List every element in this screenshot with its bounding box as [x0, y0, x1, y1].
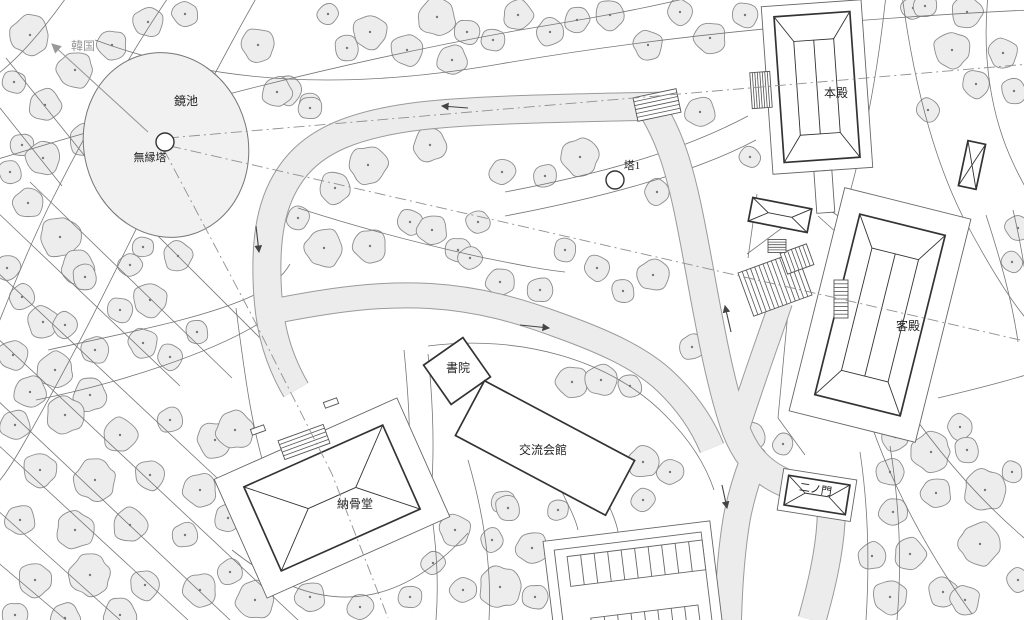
tree-center-dot: [21, 144, 23, 146]
tree-center-dot: [359, 606, 361, 608]
tree: [2, 604, 28, 620]
tree-center-dot: [979, 543, 981, 545]
tree-center-dot: [975, 83, 977, 85]
tree-center-dot: [309, 596, 311, 598]
tree-center-dot: [39, 469, 41, 471]
tree-center-dot: [323, 247, 325, 249]
label-shoin: 書院: [446, 361, 470, 375]
to-1-marker: [606, 171, 624, 189]
tree-center-dot: [406, 49, 408, 51]
tree-center-dot: [466, 31, 468, 33]
tree-center-dot: [94, 349, 96, 351]
stairs: [768, 240, 786, 253]
tree-center-dot: [309, 107, 311, 109]
muen-to-marker: [156, 133, 174, 151]
tree-center-dot: [749, 156, 751, 158]
tree-center-dot: [596, 267, 598, 269]
tree-center-dot: [429, 144, 431, 146]
tree-center-dot: [64, 324, 66, 326]
tree-center-dot: [367, 164, 369, 166]
tree: [913, 0, 936, 17]
tree-center-dot: [54, 369, 56, 371]
tree-center-dot: [544, 175, 546, 177]
tree-center-dot: [327, 13, 329, 15]
tree-center-dot: [84, 276, 86, 278]
tree-center-dot: [557, 509, 559, 511]
tree-center-dot: [782, 443, 784, 445]
tree-center-dot: [27, 202, 29, 204]
tree-center-dot: [13, 81, 15, 83]
tree-center-dot: [531, 547, 533, 549]
tree-center-dot: [930, 451, 932, 453]
tree-center-dot: [6, 267, 8, 269]
tree-center-dot: [669, 471, 671, 473]
tree-center-dot: [431, 229, 433, 231]
tree-center-dot: [507, 507, 509, 509]
tree-center-dot: [196, 331, 198, 333]
tree-center-dot: [432, 562, 434, 564]
tree-center-dot: [927, 109, 929, 111]
tree-center-dot: [539, 289, 541, 291]
tree-center-dot: [499, 281, 501, 283]
tree-center-dot: [622, 290, 624, 292]
label-koryu-kaikan: 交流会館: [519, 442, 567, 457]
tree-center-dot: [229, 571, 231, 573]
tree-center-dot: [469, 257, 471, 259]
label-nokotsudo: 納骨堂: [337, 497, 373, 511]
tree-center-dot: [462, 589, 464, 591]
tree-center-dot: [184, 13, 186, 15]
tree-center-dot: [892, 511, 894, 513]
tree-center-dot: [42, 321, 44, 323]
tree-center-dot: [64, 414, 66, 416]
tree-center-dot: [74, 529, 76, 531]
tree-center-dot: [454, 529, 456, 531]
tree-center-dot: [119, 309, 121, 311]
tree-center-dot: [257, 44, 259, 46]
tree-center-dot: [492, 39, 494, 41]
tree-center-dot: [647, 44, 649, 46]
tree-center-dot: [691, 346, 693, 348]
tree-center-dot: [89, 574, 91, 576]
tree-center-dot: [451, 59, 453, 61]
tree-center-dot: [517, 14, 519, 16]
tree-center-dot: [74, 69, 76, 71]
tree-center-dot: [144, 584, 146, 586]
tree-center-dot: [966, 449, 968, 451]
tree-center-dot: [369, 31, 371, 33]
tree-center-dot: [19, 519, 21, 521]
site-plan-page: 韓国鏡池無縁塔塔1本殿客殿書院交流会館納骨堂二ノ門: [0, 0, 1024, 620]
tree-center-dot: [142, 246, 144, 248]
tree-center-dot: [59, 236, 61, 238]
label-honden: 本殿: [824, 86, 848, 100]
tree-center-dot: [1011, 261, 1013, 263]
tree-center-dot: [656, 191, 658, 193]
tree-center-dot: [89, 394, 91, 396]
tree-center-dot: [409, 221, 411, 223]
tree-center-dot: [1013, 90, 1015, 92]
tree-center-dot: [1017, 579, 1019, 581]
tree-center-dot: [297, 217, 299, 219]
tree-center-dot: [346, 47, 348, 49]
tree-center-dot: [9, 171, 11, 173]
tree-center-dot: [234, 429, 236, 431]
tree-center-dot: [935, 492, 937, 494]
tree-center-dot: [169, 419, 171, 421]
tree-center-dot: [369, 245, 371, 247]
tree-center-dot: [436, 16, 438, 18]
tree-center-dot: [679, 11, 681, 13]
tree-center-dot: [642, 461, 644, 463]
tree-center-dot: [276, 91, 278, 93]
tree-center-dot: [942, 591, 944, 593]
stairs-outline: [768, 240, 786, 253]
tree-center-dot: [184, 534, 186, 536]
tree-center-dot: [169, 356, 171, 358]
tree-center-dot: [119, 434, 121, 436]
tree-center-dot: [499, 586, 501, 588]
tree-center-dot: [1002, 52, 1004, 54]
tree-center-dot: [564, 249, 566, 251]
tree-center-dot: [951, 49, 953, 51]
label-to-1: 塔1: [624, 159, 641, 172]
tree-center-dot: [909, 553, 911, 555]
tree-center-dot: [549, 31, 551, 33]
tree-center-dot: [652, 274, 654, 276]
tree-center-dot: [214, 439, 216, 441]
tree-center-dot: [534, 596, 536, 598]
label-korea: 韓国: [71, 39, 95, 53]
tree-center-dot: [334, 187, 336, 189]
tree-center-dot: [129, 264, 131, 266]
tree-center-dot: [119, 614, 121, 616]
tree-center-dot: [149, 474, 151, 476]
tree-center-dot: [642, 499, 644, 501]
tree-center-dot: [199, 489, 201, 491]
tree-center-dot: [699, 111, 701, 113]
site-plan-svg: 韓国鏡池無縁塔塔1本殿客殿書院交流会館納骨堂二ノ門: [0, 0, 1024, 620]
tree-center-dot: [457, 249, 459, 251]
tree-center-dot: [477, 221, 479, 223]
tree-center-dot: [14, 424, 16, 426]
tree-center-dot: [409, 596, 411, 598]
tree-center-dot: [871, 555, 873, 557]
tree-center-dot: [571, 381, 573, 383]
stairs: [750, 71, 772, 108]
tree-center-dot: [964, 599, 966, 601]
tree-center-dot: [227, 517, 229, 519]
tree-center-dot: [984, 489, 986, 491]
tree-center-dot: [744, 14, 746, 16]
tree-center-dot: [142, 342, 144, 344]
tree-center-dot: [34, 579, 36, 581]
tree-center-dot: [94, 479, 96, 481]
label-muen-to: 無縁塔: [134, 150, 167, 164]
tree-center-dot: [29, 391, 31, 393]
label-kagami-ike: 鏡池: [174, 93, 198, 108]
tree-center-dot: [924, 5, 926, 7]
tree-center-dot: [254, 599, 256, 601]
tree-center-dot: [600, 379, 602, 381]
tree-center-dot: [579, 156, 581, 158]
tree-center-dot: [29, 34, 31, 36]
label-kyakuden: 客殿: [896, 318, 920, 333]
tree-center-dot: [709, 37, 711, 39]
tree-center-dot: [42, 157, 44, 159]
tree-center-dot: [501, 171, 503, 173]
tree-center-dot: [491, 539, 493, 541]
tree-center-dot: [147, 21, 149, 23]
tree-center-dot: [1011, 471, 1013, 473]
building-platform: [814, 170, 835, 213]
tree-center-dot: [959, 426, 961, 428]
tree-center-dot: [14, 614, 16, 616]
tree-center-dot: [889, 596, 891, 598]
